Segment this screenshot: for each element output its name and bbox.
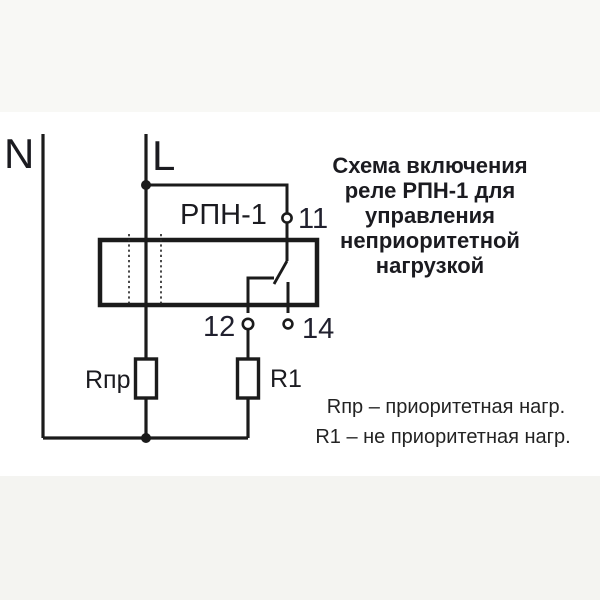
relay-name-label: РПН-1: [180, 199, 267, 231]
terminal-14-label: 14: [302, 313, 334, 345]
resistor-nonpriority-body: [238, 359, 259, 398]
neutral-feed-label: N: [4, 130, 34, 177]
terminal-12-label: 12: [203, 311, 235, 343]
terminal-11-circle: [282, 213, 291, 222]
relay-body-box: [100, 240, 317, 305]
terminal-12-circle: [243, 319, 253, 329]
terminal-11-label: 11: [298, 203, 328, 235]
terminal-14-circle: [284, 320, 293, 329]
legend-nonpriority-load: R1 – не приоритетная нагр.: [315, 426, 570, 448]
load-resistors: [136, 359, 259, 398]
relay-switch-blade: [274, 261, 287, 284]
title-line-3: управления: [365, 203, 495, 228]
load-legend: Rпр – приоритетная нагр. R1 – не приорит…: [315, 396, 570, 448]
resistor-priority-body: [136, 359, 157, 398]
title-line-5: нагрузкой: [376, 253, 484, 278]
title-line-2: реле РПН-1 для: [345, 178, 516, 203]
schematic-page: N L РПН-1 11 12 14 Rпр R1 Схема включени…: [0, 0, 600, 600]
wire-contact-12: [248, 278, 274, 313]
resistor-priority-label: Rпр: [85, 366, 131, 394]
diagram-title: Схема включения реле РПН-1 для управлени…: [332, 153, 527, 278]
title-line-4: неприоритетной: [340, 228, 520, 253]
circuit-diagram: N L РПН-1 11 12 14 Rпр R1 Схема включени…: [0, 0, 600, 600]
resistor-nonpriority-label: R1: [270, 365, 302, 393]
junction-dot-top: [141, 180, 151, 190]
title-line-1: Схема включения: [332, 153, 527, 178]
legend-priority-load: Rпр – приоритетная нагр.: [327, 396, 565, 418]
junction-dot-bottom: [141, 433, 151, 443]
line-feed-label: L: [152, 132, 175, 179]
